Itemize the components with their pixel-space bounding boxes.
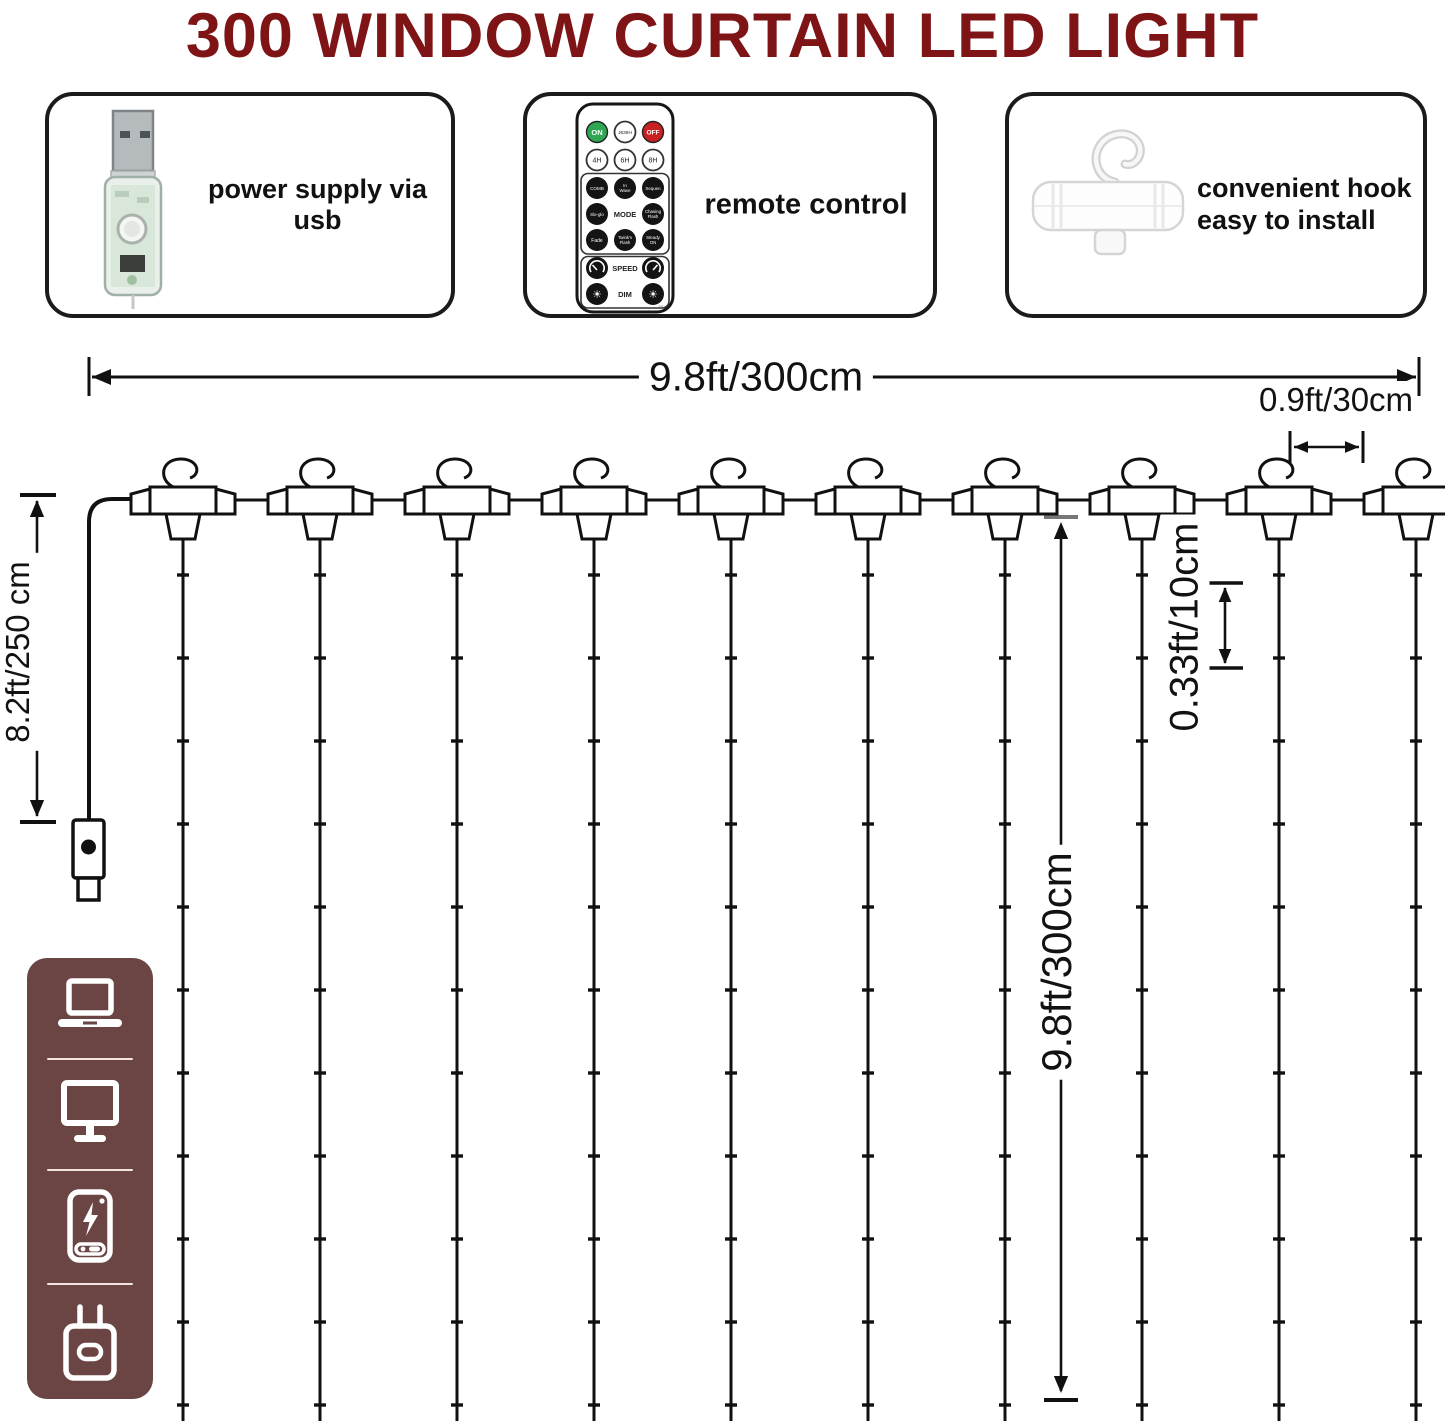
hanger-hook-icon bbox=[986, 459, 1019, 489]
spacing-dim-arrow bbox=[1294, 441, 1308, 453]
led-mark bbox=[177, 1237, 189, 1240]
led-mark bbox=[999, 1237, 1011, 1240]
led-mark bbox=[588, 905, 600, 908]
power-source-sidebar bbox=[27, 958, 153, 1399]
led-mark bbox=[451, 656, 463, 659]
led-mark bbox=[862, 573, 874, 576]
hook-end-cap bbox=[1227, 489, 1246, 514]
curtain-hook-unit bbox=[1227, 459, 1331, 539]
hook-end-cap bbox=[1175, 489, 1194, 514]
led-mark bbox=[1410, 1071, 1422, 1074]
led-mark bbox=[314, 988, 326, 991]
svg-text:SPEED: SPEED bbox=[612, 264, 638, 273]
led-mark bbox=[725, 1403, 737, 1406]
svg-text:4H: 4H bbox=[593, 158, 602, 165]
string-clamp bbox=[1125, 514, 1159, 539]
led-mark bbox=[314, 656, 326, 659]
string-clamp bbox=[1262, 514, 1296, 539]
led-mark bbox=[451, 1237, 463, 1240]
led-mark bbox=[314, 573, 326, 576]
svg-text:ON: ON bbox=[650, 240, 657, 245]
svg-text:☀: ☀ bbox=[648, 289, 658, 301]
led-mark bbox=[1410, 739, 1422, 742]
led-mark bbox=[588, 573, 600, 576]
hook-icon bbox=[1023, 120, 1193, 270]
led-mark bbox=[1273, 1403, 1285, 1406]
drop-dim-arrow bbox=[1054, 522, 1068, 539]
svg-text:6H: 6H bbox=[621, 158, 630, 165]
svg-text:Sequen: Sequen bbox=[645, 186, 661, 191]
hanger-hook-icon bbox=[438, 459, 471, 489]
monitor-icon bbox=[48, 1077, 132, 1151]
dim-total-width: 9.8ft/300cm bbox=[639, 354, 873, 401]
hook-bar bbox=[424, 487, 490, 514]
led-mark bbox=[177, 905, 189, 908]
led-mark bbox=[1136, 988, 1148, 991]
led-mark bbox=[1136, 1320, 1148, 1323]
led-mark bbox=[314, 1403, 326, 1406]
remote-control-icon: ON J639H OFF 4H 6H 8H COMB In Wave Seque… bbox=[575, 102, 675, 314]
led-mark bbox=[177, 1071, 189, 1074]
led-mark bbox=[314, 822, 326, 825]
led-mark bbox=[451, 573, 463, 576]
svg-text:Fade: Fade bbox=[591, 238, 603, 244]
hook-bar bbox=[1383, 487, 1445, 514]
led-mark bbox=[1273, 656, 1285, 659]
led-mark bbox=[1273, 1071, 1285, 1074]
led-mark bbox=[999, 1403, 1011, 1406]
led-mark bbox=[177, 573, 189, 576]
led-mark bbox=[177, 1320, 189, 1323]
led-mark bbox=[177, 739, 189, 742]
led-dim-arrow bbox=[1219, 649, 1232, 664]
led-mark bbox=[999, 988, 1011, 991]
hanger-hook-icon bbox=[301, 459, 334, 489]
wall-plug-icon bbox=[48, 1302, 132, 1382]
hook-end-cap bbox=[405, 489, 424, 514]
led-mark bbox=[725, 1320, 737, 1323]
led-mark bbox=[725, 739, 737, 742]
led-mark bbox=[1410, 1237, 1422, 1240]
dim-drop-height: 9.8ft/300cm bbox=[1031, 844, 1083, 1079]
led-mark bbox=[588, 988, 600, 991]
svg-text:Flash: Flash bbox=[648, 214, 659, 219]
drop-dim-arrow bbox=[1054, 1376, 1068, 1393]
feature-label-hook: convenient hook easy to install bbox=[1197, 173, 1417, 237]
led-mark bbox=[451, 905, 463, 908]
led-mark bbox=[725, 656, 737, 659]
led-mark bbox=[862, 1237, 874, 1240]
led-mark bbox=[1410, 988, 1422, 991]
led-mark bbox=[1410, 1320, 1422, 1323]
curtain-hook-unit bbox=[1364, 459, 1445, 539]
hanger-hook-icon bbox=[1397, 459, 1430, 489]
led-mark bbox=[1136, 739, 1148, 742]
hook-bar bbox=[835, 487, 901, 514]
led-mark bbox=[1410, 656, 1422, 659]
led-mark bbox=[177, 822, 189, 825]
led-mark bbox=[588, 1071, 600, 1074]
hook-end-cap bbox=[490, 489, 509, 514]
hook-bar bbox=[287, 487, 353, 514]
curtain-hook-unit bbox=[816, 459, 920, 539]
svg-text:MODE: MODE bbox=[614, 210, 637, 219]
led-mark bbox=[725, 822, 737, 825]
hook-end-cap bbox=[1364, 489, 1383, 514]
svg-text:ON: ON bbox=[591, 128, 602, 137]
led-mark bbox=[1273, 822, 1285, 825]
led-mark bbox=[451, 739, 463, 742]
svg-text:Flash: Flash bbox=[620, 240, 631, 245]
hook-bar bbox=[698, 487, 764, 514]
usb-connector-tip bbox=[78, 878, 99, 900]
feature-label-remote: remote control bbox=[687, 189, 925, 222]
hook-end-cap bbox=[764, 489, 783, 514]
hook-bar bbox=[561, 487, 627, 514]
led-mark bbox=[725, 988, 737, 991]
led-mark bbox=[314, 1154, 326, 1157]
led-mark bbox=[862, 1403, 874, 1406]
curtain-hook-unit bbox=[953, 459, 1057, 539]
power-cord bbox=[89, 499, 131, 820]
led-mark bbox=[588, 1154, 600, 1157]
led-mark bbox=[1136, 1237, 1148, 1240]
hook-end-cap bbox=[816, 489, 835, 514]
hook-end-cap bbox=[216, 489, 235, 514]
led-mark bbox=[1410, 905, 1422, 908]
led-mark bbox=[862, 739, 874, 742]
led-mark bbox=[1273, 739, 1285, 742]
feature-box-usb-power: power supply via usb bbox=[45, 92, 455, 318]
hook-end-cap bbox=[953, 489, 972, 514]
curtain-hook-unit bbox=[268, 459, 372, 539]
led-mark bbox=[314, 1237, 326, 1240]
led-mark bbox=[1136, 573, 1148, 576]
feature-label-hook-line1: convenient hook bbox=[1197, 173, 1417, 205]
feature-label-hook-line2: easy to install bbox=[1197, 205, 1417, 237]
led-mark bbox=[999, 739, 1011, 742]
hanger-hook-icon bbox=[575, 459, 608, 489]
led-mark bbox=[1136, 822, 1148, 825]
hook-bar bbox=[1109, 487, 1175, 514]
led-mark bbox=[725, 1071, 737, 1074]
hook-end-cap bbox=[679, 489, 698, 514]
led-mark bbox=[862, 905, 874, 908]
led-mark bbox=[1410, 573, 1422, 576]
feature-box-hook: convenient hook easy to install bbox=[1005, 92, 1427, 318]
hook-end-cap bbox=[131, 489, 150, 514]
hook-bar bbox=[972, 487, 1038, 514]
svg-text:COMB: COMB bbox=[590, 186, 604, 191]
laptop-icon bbox=[48, 975, 132, 1041]
led-mark bbox=[177, 656, 189, 659]
svg-text:8H: 8H bbox=[649, 158, 658, 165]
svg-text:111: 111 bbox=[658, 305, 663, 309]
dim-hook-spacing: 0.9ft/30cm bbox=[1255, 381, 1417, 419]
dim-led-spacing: 0.33ft/10cm bbox=[1161, 514, 1210, 739]
led-mark bbox=[1410, 1154, 1422, 1157]
product-infographic: { "title": "300 WINDOW CURTAIN LED LIGHT… bbox=[0, 0, 1445, 1421]
hanger-hook-icon bbox=[164, 459, 197, 489]
usb-plug-icon bbox=[87, 109, 183, 309]
led-mark bbox=[1273, 1320, 1285, 1323]
led-mark bbox=[314, 739, 326, 742]
led-mark bbox=[1136, 1154, 1148, 1157]
led-mark bbox=[999, 905, 1011, 908]
cord-dim-arrow bbox=[30, 500, 44, 517]
svg-text:DIM: DIM bbox=[618, 290, 632, 299]
hook-end-cap bbox=[542, 489, 561, 514]
led-mark bbox=[588, 739, 600, 742]
led-mark bbox=[725, 573, 737, 576]
led-mark bbox=[588, 1403, 600, 1406]
feature-box-remote: ON J639H OFF 4H 6H 8H COMB In Wave Seque… bbox=[523, 92, 937, 318]
led-mark bbox=[451, 1403, 463, 1406]
curtain-hook-unit bbox=[131, 459, 235, 539]
led-mark bbox=[999, 1071, 1011, 1074]
led-mark bbox=[862, 1071, 874, 1074]
led-mark bbox=[451, 1154, 463, 1157]
led-mark bbox=[1273, 1154, 1285, 1157]
led-mark bbox=[999, 573, 1011, 576]
led-mark bbox=[862, 656, 874, 659]
cord-dim-arrow bbox=[30, 800, 44, 817]
led-mark bbox=[999, 1154, 1011, 1157]
svg-text:Wave: Wave bbox=[619, 188, 631, 193]
led-mark bbox=[1273, 905, 1285, 908]
led-mark bbox=[451, 1071, 463, 1074]
led-mark bbox=[177, 988, 189, 991]
hook-end-cap bbox=[1038, 489, 1057, 514]
led-mark bbox=[314, 1071, 326, 1074]
hanger-hook-icon bbox=[849, 459, 882, 489]
led-mark bbox=[1273, 988, 1285, 991]
svg-text:J639H: J639H bbox=[618, 130, 632, 136]
hook-end-cap bbox=[1312, 489, 1331, 514]
led-mark bbox=[177, 1403, 189, 1406]
string-clamp bbox=[988, 514, 1022, 539]
led-mark bbox=[588, 822, 600, 825]
led-mark bbox=[1136, 1403, 1148, 1406]
hook-end-cap bbox=[627, 489, 646, 514]
string-clamp bbox=[577, 514, 611, 539]
led-mark bbox=[588, 656, 600, 659]
power-bank-icon bbox=[48, 1188, 132, 1266]
sidebar-divider bbox=[47, 1169, 133, 1171]
hook-end-cap bbox=[1090, 489, 1109, 514]
led-mark bbox=[1410, 1403, 1422, 1406]
led-mark bbox=[725, 1237, 737, 1240]
string-clamp bbox=[166, 514, 200, 539]
led-mark bbox=[862, 822, 874, 825]
svg-text:Slo-glo: Slo-glo bbox=[590, 212, 604, 217]
led-mark bbox=[725, 905, 737, 908]
led-mark bbox=[1136, 656, 1148, 659]
led-mark bbox=[999, 656, 1011, 659]
hanger-hook-icon bbox=[1123, 459, 1156, 489]
led-mark bbox=[1136, 905, 1148, 908]
hanger-hook-icon bbox=[712, 459, 745, 489]
sidebar-divider bbox=[47, 1283, 133, 1285]
led-mark bbox=[1273, 1237, 1285, 1240]
hook-bar bbox=[150, 487, 216, 514]
led-mark bbox=[451, 822, 463, 825]
curtain-hook-unit bbox=[679, 459, 783, 539]
led-mark bbox=[1410, 822, 1422, 825]
string-clamp bbox=[714, 514, 748, 539]
hook-end-cap bbox=[268, 489, 287, 514]
usb-connector-dot bbox=[81, 840, 96, 855]
led-mark bbox=[588, 1237, 600, 1240]
led-mark bbox=[862, 1320, 874, 1323]
led-mark bbox=[314, 1320, 326, 1323]
hook-bar bbox=[1246, 487, 1312, 514]
hook-end-cap bbox=[353, 489, 372, 514]
string-clamp bbox=[303, 514, 337, 539]
string-clamp bbox=[440, 514, 474, 539]
led-mark bbox=[1136, 1071, 1148, 1074]
width-dim-arrow bbox=[92, 369, 111, 385]
curtain-hook-unit bbox=[405, 459, 509, 539]
hook-end-cap bbox=[901, 489, 920, 514]
led-mark bbox=[725, 1154, 737, 1157]
curtain-hook-unit bbox=[542, 459, 646, 539]
led-mark bbox=[1273, 573, 1285, 576]
sidebar-divider bbox=[47, 1058, 133, 1060]
led-mark bbox=[451, 988, 463, 991]
string-clamp bbox=[1399, 514, 1433, 539]
led-mark bbox=[862, 1154, 874, 1157]
led-mark bbox=[999, 1320, 1011, 1323]
led-mark bbox=[862, 988, 874, 991]
hanger-hook-icon bbox=[1260, 459, 1293, 489]
dim-power-cord-length: 8.2ft/250 cm bbox=[0, 553, 39, 751]
svg-text:☀: ☀ bbox=[592, 289, 602, 301]
led-mark bbox=[588, 1320, 600, 1323]
svg-text:OFF: OFF bbox=[647, 130, 660, 137]
led-dim-arrow bbox=[1219, 587, 1232, 602]
led-mark bbox=[999, 822, 1011, 825]
led-mark bbox=[314, 905, 326, 908]
led-mark bbox=[451, 1320, 463, 1323]
feature-label-usb-power: power supply via usb bbox=[194, 174, 441, 236]
spacing-dim-arrow bbox=[1345, 441, 1359, 453]
string-clamp bbox=[851, 514, 885, 539]
led-mark bbox=[177, 1154, 189, 1157]
